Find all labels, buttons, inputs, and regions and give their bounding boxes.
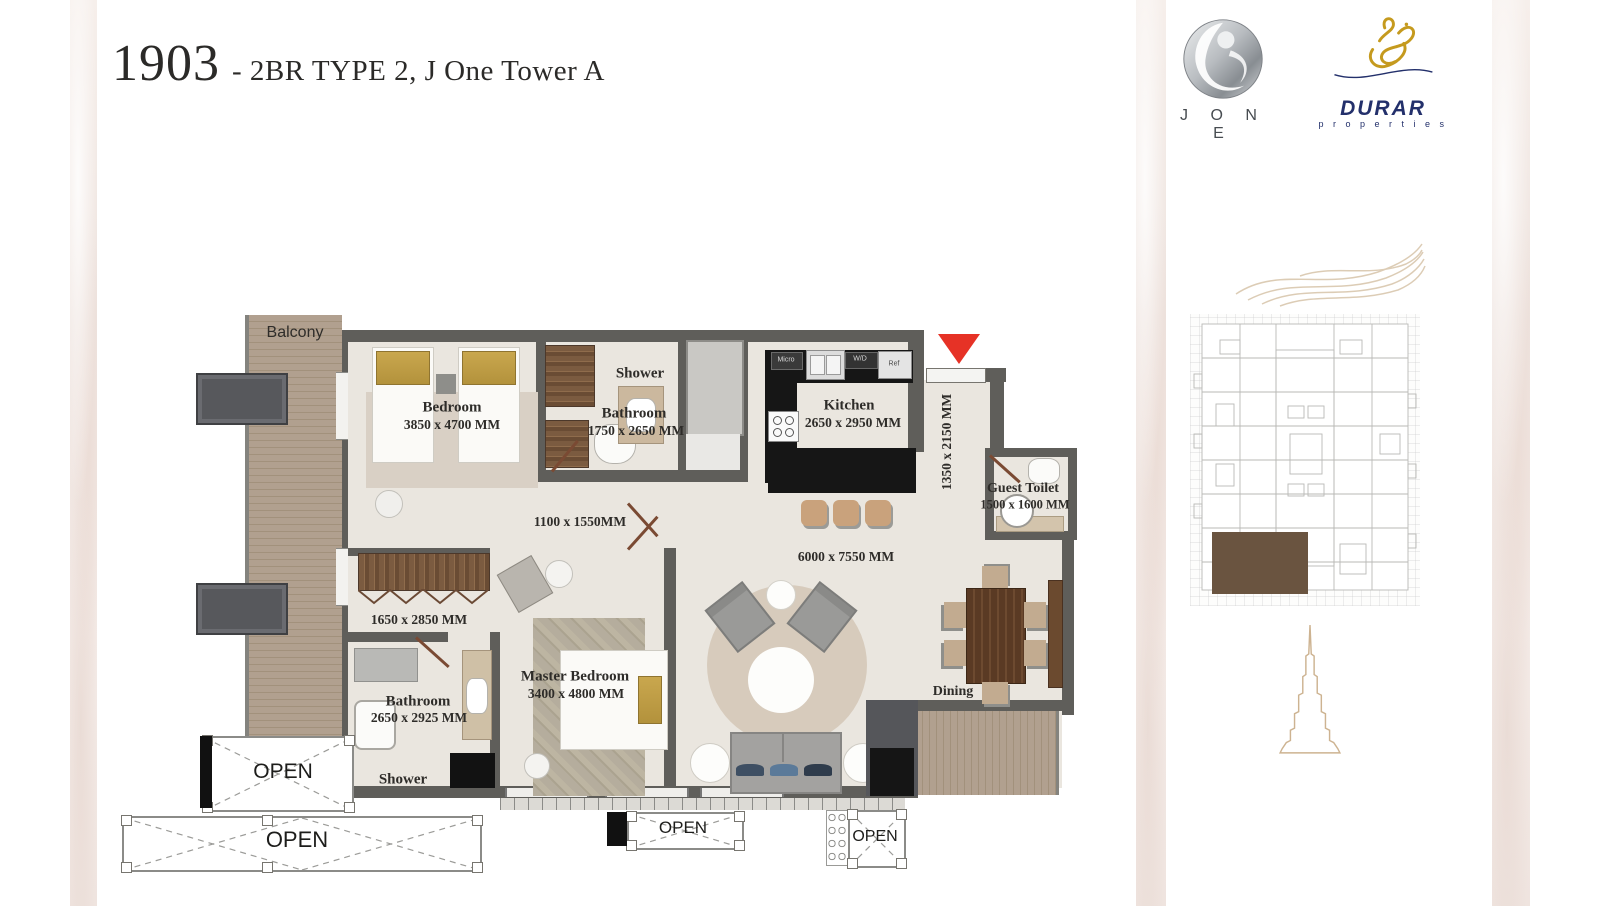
wall <box>348 632 448 642</box>
post-marker <box>121 862 132 873</box>
post-marker <box>472 862 483 873</box>
burj-khalifa-icon <box>1276 622 1344 758</box>
dining-chair <box>1024 640 1046 666</box>
wall <box>678 334 686 472</box>
round-side-table <box>690 743 730 783</box>
balcony-label: Balcony <box>267 324 324 342</box>
swoosh-decoration-icon <box>1228 232 1428 312</box>
dining-label: Dining <box>933 684 973 700</box>
entry-hall-dims: 1350 x 2150 MM <box>939 394 955 490</box>
open-label: OPEN <box>266 827 328 853</box>
microwave-label: Micro <box>777 357 794 364</box>
kitchen-bar-counter <box>768 448 916 493</box>
post-marker <box>344 735 355 746</box>
open-label: OPEN <box>253 760 313 784</box>
master-bathroom-label: Bathroom <box>386 694 451 711</box>
post-marker <box>896 858 907 869</box>
post-marker <box>847 809 858 820</box>
balcony-door-opening <box>336 548 348 606</box>
bedroom-dims: 3850 x 4700 MM <box>404 417 500 433</box>
guest-toilet-dims: 1500 x 1600 MM <box>980 498 1069 513</box>
post-marker <box>896 809 907 820</box>
master-bed-pillow <box>638 676 662 724</box>
sideboard <box>1048 580 1063 688</box>
burner <box>785 428 794 437</box>
open-label: OPEN <box>659 818 707 838</box>
post-marker <box>734 840 745 851</box>
master-shower-label: Shower <box>379 772 427 789</box>
post-marker <box>626 840 637 851</box>
bar-stool <box>801 500 827 526</box>
corridor-dims: 1100 x 1550MM <box>534 514 626 530</box>
shaft-lower <box>686 434 740 470</box>
dining-chair <box>982 566 1008 588</box>
guest-toilet-label: Guest Toilet <box>987 481 1059 497</box>
wall <box>536 470 748 482</box>
wardrobe-folding-doors <box>358 589 488 605</box>
shower-floor <box>450 753 495 788</box>
sofa-pillow <box>804 764 832 776</box>
sink-basin <box>826 355 841 375</box>
balcony-planter <box>196 583 288 635</box>
wardrobe <box>358 553 490 591</box>
dining-chair <box>944 640 966 666</box>
closet <box>545 420 589 468</box>
kitchen-sink <box>806 350 845 380</box>
burner <box>773 428 782 437</box>
bed-pillow <box>462 351 516 385</box>
post-marker <box>626 811 637 822</box>
burner <box>785 416 794 425</box>
dining-table <box>966 588 1026 684</box>
sofa <box>730 732 842 794</box>
dining-chair <box>944 602 966 628</box>
sink-basin <box>810 355 825 375</box>
master-bathroom-dims: 2650 x 2925 MM <box>371 710 467 726</box>
dining-chair <box>1024 602 1046 628</box>
master-bedroom-label: Master Bedroom <box>521 669 629 686</box>
post-marker <box>472 815 483 826</box>
entry-door <box>926 368 986 383</box>
washer-dryer-label: W/D <box>853 356 867 363</box>
cooktop <box>768 411 799 442</box>
bedroom-label: Bedroom <box>423 400 482 417</box>
sofa-pillow <box>736 764 764 776</box>
upper-bathroom-label: Bathroom <box>602 406 667 423</box>
post-marker <box>847 858 858 869</box>
lower-balcony-deck <box>916 711 1059 795</box>
key-plan-drawing <box>1190 314 1420 606</box>
upper-shower-label: Shower <box>616 366 664 383</box>
bed-pillow <box>376 351 430 385</box>
wall <box>1068 448 1077 540</box>
dining-chair <box>982 682 1008 704</box>
terrace-ledge <box>500 798 905 810</box>
burner <box>773 416 782 425</box>
sofa-pillow <box>770 764 798 776</box>
bathroom-counter <box>354 648 418 682</box>
post-marker <box>344 802 355 813</box>
open-label: OPEN <box>852 828 897 846</box>
post-marker <box>734 811 745 822</box>
living-dims: 6000 x 7550 MM <box>798 549 894 565</box>
balcony-planter <box>196 373 288 425</box>
refrigerator-label: Ref <box>889 361 900 368</box>
basin <box>466 678 488 714</box>
closet <box>545 345 595 407</box>
column <box>200 736 212 808</box>
post-marker <box>262 815 273 826</box>
side-table <box>545 560 573 588</box>
highlighted-unit <box>1212 532 1308 594</box>
post-marker <box>121 815 132 826</box>
kitchen-dims: 2650 x 2950 MM <box>805 415 901 431</box>
service-shaft <box>686 340 744 436</box>
entrance-arrow-icon <box>938 334 980 364</box>
dark-block <box>870 748 914 796</box>
wall <box>1062 535 1074 715</box>
bar-stool <box>865 500 891 526</box>
building-key-plan <box>1190 314 1420 606</box>
balcony-door-opening <box>336 372 348 440</box>
sofa-seam <box>782 734 784 762</box>
wall <box>908 330 924 452</box>
wall <box>990 382 1004 452</box>
wall <box>338 330 910 342</box>
kitchen-label: Kitchen <box>824 398 875 415</box>
wardrobe-dims: 1650 x 2850 MM <box>371 612 467 628</box>
post-marker <box>262 862 273 873</box>
wall <box>984 368 1006 382</box>
round-side-table <box>766 580 796 610</box>
nightstand <box>436 374 456 394</box>
stool <box>375 490 403 518</box>
stool <box>524 753 550 779</box>
master-bedroom-dims: 3400 x 4800 MM <box>528 686 624 702</box>
column <box>607 812 627 846</box>
coffee-table <box>748 647 814 713</box>
bar-stool <box>833 500 859 526</box>
upper-bathroom-dims: 1750 x 2650 MM <box>588 423 684 439</box>
wall <box>985 448 1077 457</box>
